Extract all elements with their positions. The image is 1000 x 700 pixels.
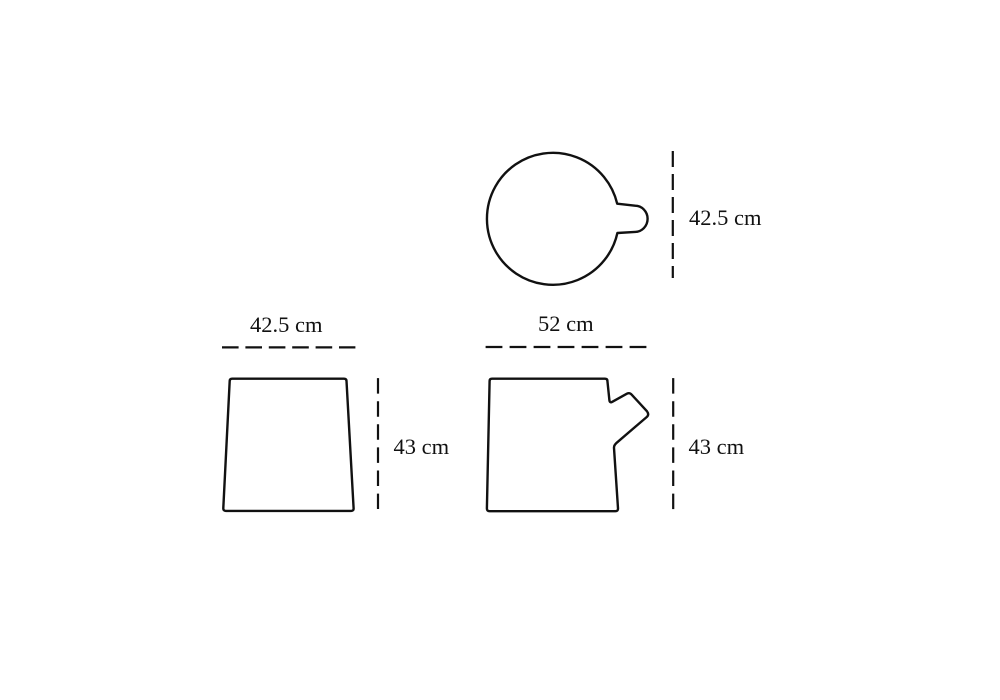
svg-text:43 cm: 43 cm	[394, 434, 450, 459]
svg-text:43 cm: 43 cm	[689, 434, 745, 459]
svg-text:52 cm: 52 cm	[538, 311, 594, 336]
svg-text:42.5 cm: 42.5 cm	[250, 312, 323, 337]
svg-text:42.5 cm: 42.5 cm	[689, 205, 762, 230]
